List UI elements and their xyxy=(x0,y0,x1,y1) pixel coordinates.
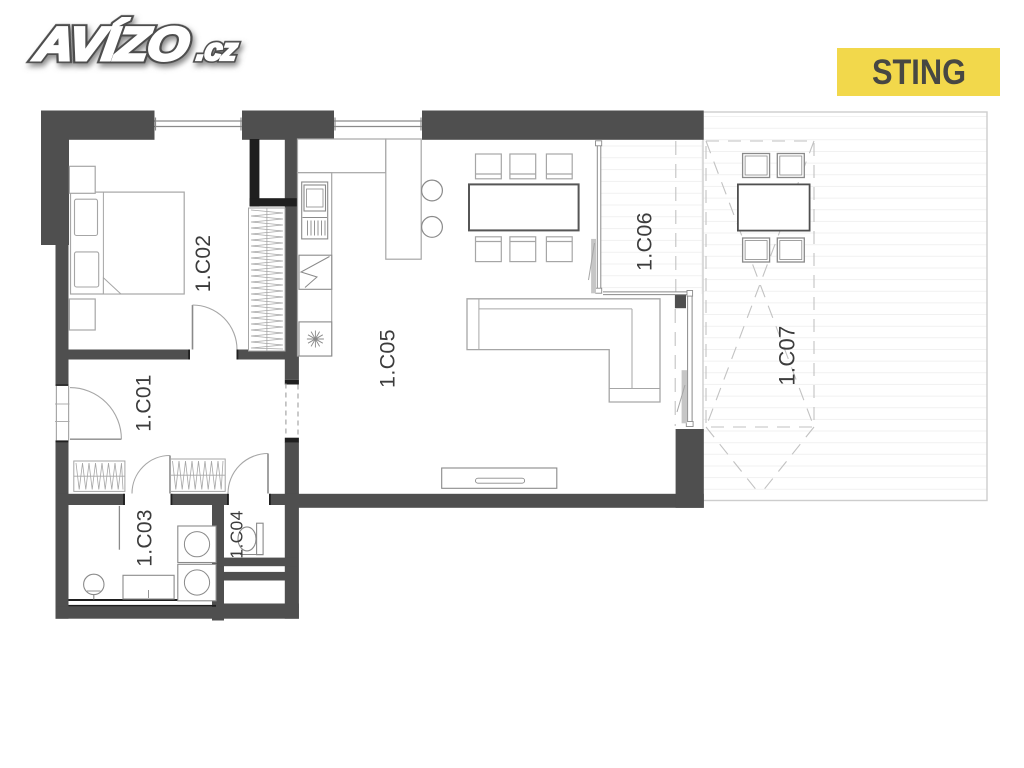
svg-text:1.C06: 1.C06 xyxy=(632,212,656,271)
svg-text:1.C02: 1.C02 xyxy=(192,235,215,293)
svg-text:1.C03: 1.C03 xyxy=(134,509,157,567)
svg-text:AVÍZO: AVÍZO xyxy=(31,17,192,71)
svg-text:STING: STING xyxy=(872,53,966,92)
svg-text:1.C07: 1.C07 xyxy=(775,325,800,385)
svg-text:.cz: .cz xyxy=(195,32,241,67)
svg-text:1.C04: 1.C04 xyxy=(227,510,247,558)
svg-text:1.C01: 1.C01 xyxy=(133,374,156,432)
svg-text:1.C05: 1.C05 xyxy=(376,329,400,388)
